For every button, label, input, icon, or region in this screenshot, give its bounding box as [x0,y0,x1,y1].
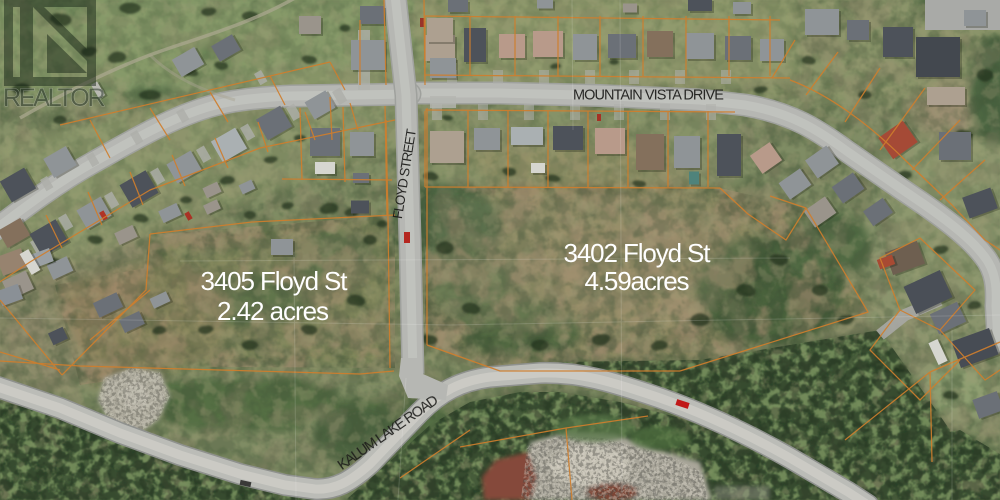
svg-text:MOUNTAIN VISTA DRIVE: MOUNTAIN VISTA DRIVE [573,88,725,104]
svg-text:3405 Floyd St: 3405 Floyd St [201,266,349,296]
svg-text:REALTOR: REALTOR [3,84,107,112]
svg-text:3402 Floyd St: 3402 Floyd St [564,238,712,268]
svg-text:2.42 acres: 2.42 acres [217,296,329,326]
svg-text:4.59acres: 4.59acres [585,266,690,296]
